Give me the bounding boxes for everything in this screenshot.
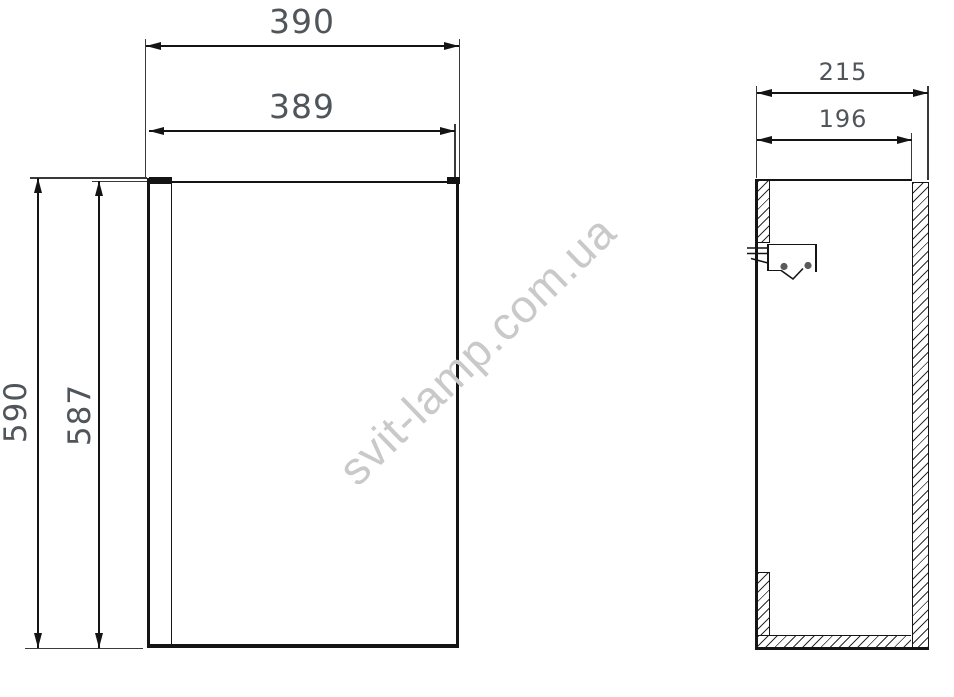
side-depth-outer-label: 215: [802, 59, 884, 86]
extension-line: [756, 86, 757, 178]
top-panel-edge: [755, 179, 912, 181]
arrowhead-right: [897, 136, 912, 144]
upper-hanging-rail-hatched: [758, 181, 771, 243]
arrowhead-right: [913, 89, 928, 97]
door-panel-section-hatched: [912, 182, 929, 650]
dimension-line-215: [757, 92, 928, 93]
bracket-pin: [780, 263, 787, 270]
bracket-pin: [804, 262, 811, 269]
dimension-line-196: [757, 139, 912, 140]
bottom-outline: [755, 647, 929, 651]
technical-drawing-canvas: 390 389 590 587 215: [0, 0, 954, 697]
arrowhead-left: [757, 136, 772, 144]
side-depth-inner-label: 196: [802, 106, 884, 133]
hanging-bracket-detail: [740, 240, 830, 290]
arrowhead-left: [757, 89, 772, 97]
extension-line: [927, 86, 928, 180]
lower-hanging-rail-hatched: [758, 572, 771, 635]
bottom-panel-hatched: [758, 635, 912, 647]
